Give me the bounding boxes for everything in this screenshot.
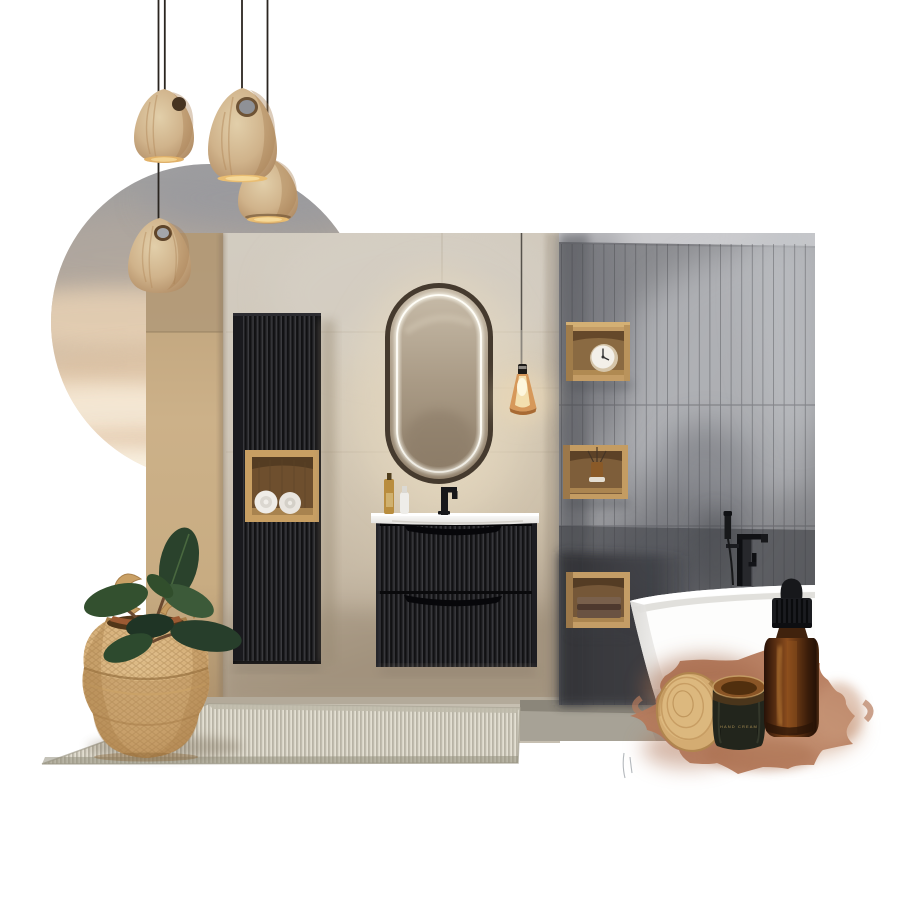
svg-text:HAND CREAM: HAND CREAM — [720, 724, 758, 729]
